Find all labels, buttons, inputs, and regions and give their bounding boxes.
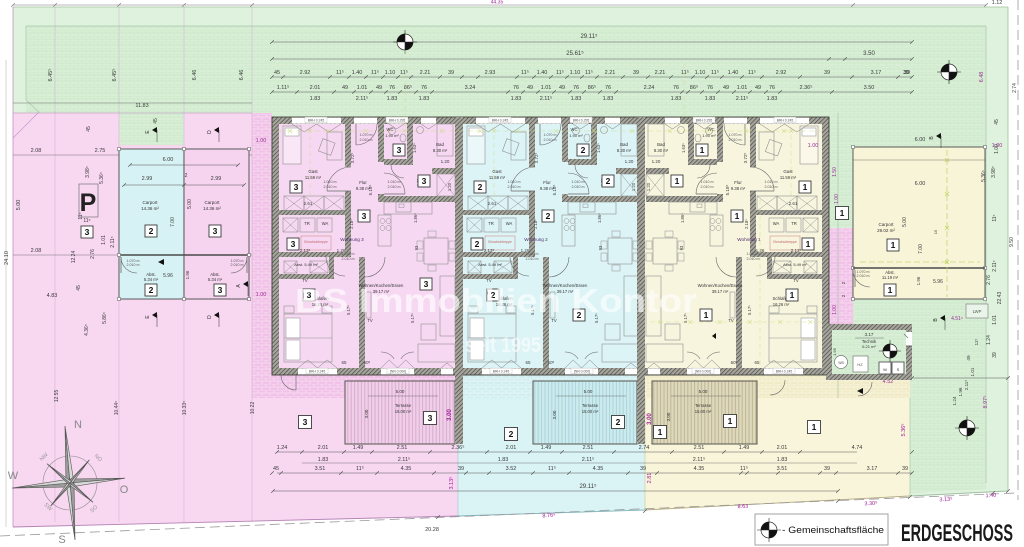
svg-text:3.30⁵: 3.30⁵ — [864, 500, 877, 508]
svg-text:3: 3 — [85, 227, 90, 237]
svg-text:3: 3 — [428, 413, 433, 423]
svg-text:2.11⁵: 2.11⁵ — [964, 380, 969, 391]
svg-text:1: 1 — [675, 176, 680, 186]
svg-text:Gast: Gast — [308, 169, 318, 174]
svg-text:1.83: 1.83 — [777, 457, 788, 463]
svg-text:11⁵: 11⁵ — [681, 69, 689, 76]
svg-text:1.96: 1.96 — [185, 270, 190, 279]
svg-text:11⁵: 11⁵ — [356, 465, 364, 472]
svg-text:29.02 m²: 29.02 m² — [877, 228, 895, 233]
svg-text:BRH 0.245: BRH 0.245 — [308, 119, 325, 123]
svg-text:3.00: 3.00 — [447, 409, 453, 421]
svg-text:8.76⁵: 8.76⁵ — [542, 512, 555, 520]
svg-text:5.34 m²: 5.34 m² — [208, 277, 223, 282]
svg-text:3.51: 3.51 — [777, 466, 788, 472]
svg-text:2.010 m: 2.010 m — [729, 138, 742, 142]
svg-text:11⁵: 11⁵ — [400, 69, 408, 76]
svg-text:5.36⁵: 5.36⁵ — [981, 170, 987, 182]
svg-text:WA: WA — [773, 221, 780, 226]
svg-text:11⁵: 11⁵ — [585, 69, 593, 76]
svg-text:S: S — [58, 534, 65, 546]
svg-text:6.00: 6.00 — [915, 181, 926, 187]
svg-text:2.81: 2.81 — [647, 473, 653, 484]
svg-text:1.010 m: 1.010 m — [765, 180, 778, 184]
svg-text:76: 76 — [513, 85, 519, 91]
svg-text:2.61: 2.61 — [488, 201, 497, 206]
svg-text:1.01: 1.01 — [101, 235, 107, 245]
svg-text:3.98⁵: 3.98⁵ — [991, 166, 997, 178]
svg-text:8.97⁵: 8.97⁵ — [982, 396, 989, 409]
svg-text:11⁵: 11⁵ — [83, 218, 90, 224]
svg-text:3.24: 3.24 — [465, 85, 476, 91]
svg-text:BRH 0.245: BRH 0.245 — [777, 119, 794, 123]
svg-text:45: 45 — [76, 285, 82, 291]
svg-text:39: 39 — [824, 70, 830, 76]
svg-text:Abst. 5.49 m²: Abst. 5.49 m² — [783, 262, 807, 267]
svg-text:11.83: 11.83 — [135, 103, 148, 109]
svg-text:1.40: 1.40 — [985, 493, 996, 500]
svg-text:Bad: Bad — [436, 142, 444, 147]
svg-text:5.00: 5.00 — [699, 389, 708, 394]
svg-text:2.13⁵: 2.13⁵ — [300, 248, 311, 253]
svg-text:1.49: 1.49 — [739, 445, 750, 451]
svg-text:2: 2 — [478, 182, 483, 192]
svg-text:2.61: 2.61 — [789, 201, 798, 206]
svg-text:Carport: Carport — [142, 200, 158, 205]
svg-text:1.40: 1.40 — [352, 70, 363, 76]
svg-text:76: 76 — [769, 85, 775, 91]
svg-text:3.72⁵: 3.72⁵ — [534, 153, 539, 164]
svg-text:12.24: 12.24 — [71, 251, 77, 264]
svg-text:7.00: 7.00 — [918, 244, 924, 254]
svg-text:15: 15 — [933, 229, 938, 234]
svg-text:1.12: 1.12 — [992, 0, 1003, 6]
svg-text:1.83: 1.83 — [310, 96, 321, 102]
svg-text:39: 39 — [992, 352, 998, 358]
svg-text:Einschubtreppe: Einschubtreppe — [488, 240, 512, 244]
svg-text:15.00 m²: 15.00 m² — [582, 409, 599, 414]
svg-text:Gast: Gast — [783, 169, 793, 174]
svg-text:Carport: Carport — [204, 200, 220, 205]
svg-text:W: W — [883, 367, 887, 372]
svg-text:1.83: 1.83 — [511, 96, 522, 102]
svg-text:4.35: 4.35 — [694, 466, 705, 472]
svg-text:1.010 m: 1.010 m — [572, 180, 585, 184]
svg-text:2.010 m: 2.010 m — [701, 185, 714, 189]
svg-text:3.00: 3.00 — [647, 413, 653, 425]
svg-text:45: 45 — [153, 118, 159, 124]
svg-text:3: 3 — [362, 211, 367, 221]
svg-text:3.50: 3.50 — [863, 51, 875, 57]
svg-text:2.92: 2.92 — [776, 70, 787, 76]
svg-text:P: P — [80, 189, 97, 217]
svg-text:2.010 m: 2.010 m — [324, 185, 337, 189]
svg-text:1.40: 1.40 — [728, 70, 739, 76]
svg-text:2.51: 2.51 — [694, 445, 705, 451]
svg-text:1.010 m: 1.010 m — [324, 180, 337, 184]
svg-text:[NN 0.000]: [NN 0.000] — [390, 370, 406, 374]
svg-text:2.11⁵: 2.11⁵ — [398, 456, 411, 463]
svg-text:3.00: 3.00 — [666, 412, 671, 421]
svg-text:1.20: 1.20 — [652, 159, 661, 164]
svg-text:1.40: 1.40 — [537, 70, 548, 76]
svg-text:3: 3 — [218, 285, 223, 295]
svg-text:2: 2 — [149, 285, 154, 295]
svg-text:3.00: 3.00 — [364, 409, 369, 418]
svg-text:2.01: 2.01 — [318, 445, 329, 451]
svg-text:3: 3 — [291, 239, 296, 249]
svg-text:2.010 m: 2.010 m — [526, 257, 539, 261]
svg-text:49: 49 — [755, 85, 761, 91]
svg-text:76: 76 — [421, 85, 427, 91]
svg-text:TR: TR — [488, 221, 494, 226]
svg-text:4.36⁵: 4.36⁵ — [84, 324, 90, 336]
svg-text:2: 2 — [581, 145, 586, 155]
svg-text:1: 1 — [735, 211, 740, 221]
svg-text:15.00 m²: 15.00 m² — [695, 409, 712, 414]
svg-text:6.46: 6.46 — [239, 70, 245, 81]
svg-text:3.13⁵: 3.13⁵ — [939, 496, 952, 504]
svg-text:8.63: 8.63 — [737, 504, 748, 511]
svg-text:6.00: 6.00 — [163, 157, 174, 163]
svg-text:7.00: 7.00 — [170, 217, 176, 227]
svg-text:TV: TV — [793, 278, 799, 283]
svg-text:3.17: 3.17 — [865, 332, 874, 337]
svg-text:TR: TR — [304, 221, 310, 226]
svg-text:65: 65 — [342, 360, 347, 365]
svg-text:2.010 m: 2.010 m — [544, 138, 557, 142]
svg-text:60⁵: 60⁵ — [731, 360, 738, 365]
svg-text:1.83: 1.83 — [571, 96, 582, 102]
svg-text:3: 3 — [397, 145, 402, 155]
svg-text:Terrasse: Terrasse — [582, 403, 599, 408]
svg-text:Flur: Flur — [734, 180, 742, 185]
svg-text:1.00: 1.00 — [994, 144, 1000, 154]
svg-text:5.18⁵: 5.18⁵ — [368, 185, 373, 196]
svg-text:93: 93 — [414, 245, 419, 250]
svg-text:1.00: 1.00 — [832, 305, 838, 315]
svg-text:Carport: Carport — [878, 222, 894, 227]
svg-text:Wohnen/Kochen/Essen: Wohnen/Kochen/Essen — [698, 283, 743, 288]
svg-text:WA: WA — [322, 221, 329, 226]
svg-text:1.24: 1.24 — [277, 445, 288, 451]
svg-text:39: 39 — [448, 70, 454, 76]
svg-text:5.00: 5.00 — [187, 199, 193, 209]
svg-text:Abst. 5.49 m²: Abst. 5.49 m² — [294, 262, 318, 267]
svg-text:1.20: 1.20 — [646, 182, 651, 191]
svg-text:11⁵: 11⁵ — [336, 69, 344, 76]
svg-text:Bad: Bad — [620, 142, 628, 147]
svg-text:1.63⁵: 1.63⁵ — [681, 143, 686, 153]
svg-text:2.61: 2.61 — [304, 201, 313, 206]
svg-text:5.96: 5.96 — [933, 279, 943, 285]
svg-text:76: 76 — [389, 85, 395, 91]
svg-text:5.00: 5.00 — [902, 217, 908, 227]
svg-text:2.18⁵: 2.18⁵ — [349, 219, 354, 229]
svg-text:2: 2 — [475, 239, 480, 249]
svg-text:1.96: 1.96 — [916, 276, 921, 285]
svg-text:3.51: 3.51 — [315, 466, 326, 472]
svg-text:5.86⁵: 5.86⁵ — [102, 312, 108, 324]
svg-text:1.01: 1.01 — [541, 85, 552, 91]
svg-text:1.86⁵: 1.86⁵ — [680, 213, 685, 223]
svg-text:16.26 m²: 16.26 m² — [773, 302, 790, 307]
svg-text:86⁵: 86⁵ — [588, 84, 596, 91]
svg-text:49: 49 — [376, 85, 382, 91]
svg-text:2: 2 — [149, 226, 154, 236]
svg-text:45: 45 — [86, 126, 92, 132]
svg-text:11⁵: 11⁵ — [548, 465, 556, 472]
svg-text:3: 3 — [294, 182, 299, 192]
svg-text:39: 39 — [824, 466, 830, 472]
svg-text:Terrasse: Terrasse — [395, 403, 412, 408]
svg-text:2.11⁵: 2.11⁵ — [582, 456, 595, 463]
svg-text:5.18⁵: 5.18⁵ — [552, 185, 557, 196]
svg-text:1: 1 — [891, 240, 896, 250]
svg-text:Wohnung 1: Wohnung 1 — [737, 237, 761, 242]
svg-text:2.76: 2.76 — [986, 275, 992, 285]
svg-text:- Gemeinschaftsfläche: - Gemeinschaftsfläche — [782, 525, 884, 535]
svg-text:39: 39 — [903, 70, 909, 76]
svg-text:1.10: 1.10 — [570, 70, 581, 76]
svg-text:1.96: 1.96 — [832, 347, 837, 356]
svg-text:12.55: 12.55 — [54, 390, 60, 403]
svg-text:2: 2 — [509, 429, 514, 439]
svg-text:2.010 m: 2.010 m — [765, 185, 778, 189]
svg-text:Einschubtreppe: Einschubtreppe — [304, 240, 328, 244]
svg-text:6.21 m²: 6.21 m² — [862, 344, 876, 349]
svg-text:2.13⁵: 2.13⁵ — [791, 248, 802, 253]
svg-text:Gast: Gast — [492, 169, 502, 174]
svg-text:1.01: 1.01 — [970, 367, 975, 376]
svg-text:60⁵: 60⁵ — [364, 360, 371, 365]
svg-text:Bad: Bad — [657, 142, 665, 147]
svg-text:10.33⁵: 10.33⁵ — [182, 401, 188, 416]
svg-text:1: 1 — [700, 145, 705, 155]
svg-text:2.11⁵: 2.11⁵ — [540, 95, 553, 102]
svg-text:1.86⁵: 1.86⁵ — [597, 213, 602, 223]
svg-text:10.44⁵: 10.44⁵ — [114, 401, 120, 416]
svg-text:BS Immobilien Kontor: BS Immobilien Kontor — [295, 282, 697, 319]
svg-text:14.36 m²: 14.36 m² — [203, 206, 221, 211]
svg-text:2.010 m: 2.010 m — [857, 274, 870, 278]
svg-text:5.00: 5.00 — [396, 389, 405, 394]
svg-text:11⁵: 11⁵ — [992, 214, 998, 221]
svg-text:10.22: 10.22 — [250, 402, 256, 415]
svg-text:5.36⁵: 5.36⁵ — [900, 424, 907, 437]
svg-text:3: 3 — [303, 417, 308, 427]
svg-text:3: 3 — [422, 176, 427, 186]
svg-text:4.35: 4.35 — [593, 466, 604, 472]
svg-text:BRH 0.245: BRH 0.245 — [492, 119, 509, 123]
svg-text:60⁵: 60⁵ — [548, 360, 555, 365]
svg-text:6.00: 6.00 — [915, 137, 926, 143]
svg-text:29.11⁵: 29.11⁵ — [579, 483, 597, 490]
svg-text:1.90 m²: 1.90 m² — [385, 133, 399, 138]
svg-text:6.48: 6.48 — [979, 72, 985, 83]
svg-text:5.36⁵: 5.36⁵ — [99, 172, 105, 184]
svg-text:2.99: 2.99 — [142, 176, 153, 182]
svg-text:6.45⁵: 6.45⁵ — [47, 69, 54, 82]
svg-text:2: 2 — [546, 211, 551, 221]
svg-text:1.070 m: 1.070 m — [360, 133, 373, 137]
svg-text:1.11⁵: 1.11⁵ — [277, 84, 290, 91]
svg-text:1.83: 1.83 — [419, 96, 430, 102]
svg-text:11.59 m²: 11.59 m² — [780, 175, 797, 180]
svg-text:39: 39 — [640, 466, 646, 472]
svg-text:2.010 m: 2.010 m — [342, 257, 355, 261]
svg-text:2.010 m: 2.010 m — [388, 185, 401, 189]
svg-text:22.43: 22.43 — [997, 292, 1003, 305]
svg-text:4.83: 4.83 — [47, 293, 58, 299]
svg-text:2.010 m: 2.010 m — [231, 263, 244, 267]
svg-text:S: S — [897, 367, 900, 372]
svg-text:1.49: 1.49 — [541, 445, 552, 451]
svg-text:8.30 m²: 8.30 m² — [617, 148, 632, 153]
svg-text:5.18⁵: 5.18⁵ — [725, 185, 730, 196]
svg-text:9.50: 9.50 — [1009, 237, 1015, 247]
svg-text:2.010 m: 2.010 m — [127, 263, 140, 267]
svg-text:1: 1 — [888, 285, 893, 295]
svg-text:Flur: Flur — [359, 180, 367, 185]
svg-text:2.24: 2.24 — [644, 85, 655, 91]
svg-text:11⁵: 11⁵ — [371, 69, 379, 76]
svg-text:2.01: 2.01 — [777, 445, 788, 451]
svg-text:2.13⁵: 2.13⁵ — [484, 248, 495, 253]
svg-text:2.21: 2.21 — [655, 70, 666, 76]
svg-text:1: 1 — [728, 416, 733, 426]
svg-text:45: 45 — [274, 70, 280, 76]
svg-text:WA: WA — [506, 221, 513, 226]
svg-text:WB: WB — [838, 361, 844, 365]
svg-text:BRH 0.245: BRH 0.245 — [776, 370, 793, 374]
svg-text:4.74: 4.74 — [852, 445, 863, 451]
svg-text:76: 76 — [707, 85, 713, 91]
svg-text:1.24: 1.24 — [952, 396, 957, 405]
svg-text:1: 1 — [806, 239, 811, 249]
svg-text:11⁵: 11⁵ — [556, 69, 564, 76]
svg-text:3: 3 — [213, 226, 218, 236]
svg-text:1.010 m: 1.010 m — [701, 180, 714, 184]
svg-text:49: 49 — [966, 355, 971, 361]
svg-text:3.52: 3.52 — [506, 466, 517, 472]
svg-text:5.17⁵: 5.17⁵ — [747, 305, 752, 315]
svg-text:45: 45 — [994, 119, 1000, 125]
svg-text:2.75: 2.75 — [95, 148, 106, 154]
svg-text:1.01: 1.01 — [357, 85, 368, 91]
svg-text:45: 45 — [273, 466, 279, 472]
svg-text:1.20: 1.20 — [631, 182, 636, 191]
svg-text:Terrasse: Terrasse — [695, 403, 712, 408]
svg-text:3.50: 3.50 — [864, 85, 875, 91]
svg-text:2.92: 2.92 — [300, 70, 311, 76]
svg-text:5.00: 5.00 — [16, 200, 22, 211]
svg-text:11.19 m²: 11.19 m² — [882, 275, 899, 280]
svg-text:1.070 m: 1.070 m — [729, 133, 742, 137]
svg-text:2.21: 2.21 — [420, 70, 431, 76]
svg-text:2: 2 — [185, 173, 188, 179]
svg-text:1.90 m²: 1.90 m² — [702, 133, 716, 138]
svg-text:1.10: 1.10 — [695, 70, 706, 76]
svg-text:24.10: 24.10 — [4, 251, 10, 265]
svg-text:2.08: 2.08 — [31, 248, 42, 254]
svg-text:1.83: 1.83 — [705, 96, 716, 102]
svg-text:2.18⁵: 2.18⁵ — [744, 219, 749, 229]
svg-text:BRH 0.245: BRH 0.245 — [309, 370, 326, 374]
svg-text:2.76: 2.76 — [90, 249, 96, 259]
svg-text:39: 39 — [458, 466, 464, 472]
svg-text:1.20: 1.20 — [447, 182, 452, 191]
svg-text:76: 76 — [673, 85, 679, 91]
svg-text:D: D — [207, 315, 213, 319]
svg-text:5.96: 5.96 — [163, 273, 173, 279]
svg-text:2.21: 2.21 — [605, 70, 616, 76]
svg-text:2.010 m: 2.010 m — [508, 185, 521, 189]
svg-text:2.99: 2.99 — [211, 176, 222, 182]
svg-text:1.63⁵: 1.63⁵ — [596, 143, 601, 153]
svg-text:2.010 m: 2.010 m — [747, 257, 760, 261]
svg-text:D: D — [207, 130, 213, 134]
svg-text:1: 1 — [658, 427, 663, 437]
svg-text:1: 1 — [704, 310, 709, 320]
svg-text:BRH 0.295: BRH 0.295 — [696, 119, 713, 123]
svg-text:9.38 m²: 9.38 m² — [731, 186, 746, 191]
svg-text:1.26: 1.26 — [521, 248, 530, 253]
svg-text:1.90 m²: 1.90 m² — [569, 133, 583, 138]
svg-text:8.30 m²: 8.30 m² — [654, 148, 669, 153]
svg-text:15.00 m²: 15.00 m² — [395, 409, 412, 414]
svg-text:5.00: 5.00 — [584, 389, 593, 394]
svg-text:O: O — [120, 484, 129, 496]
svg-text:39: 39 — [633, 70, 639, 76]
svg-text:11⁵: 11⁵ — [974, 339, 979, 346]
svg-text:ERDGESCHOSS: ERDGESCHOSS — [901, 520, 1013, 547]
svg-text:1.20: 1.20 — [441, 159, 450, 164]
svg-text:3.72⁵: 3.72⁵ — [350, 153, 355, 164]
svg-text:6.46: 6.46 — [192, 70, 198, 81]
svg-text:W: W — [8, 470, 19, 482]
svg-text:44.35: 44.35 — [491, 0, 504, 6]
svg-text:3.72⁵: 3.72⁵ — [743, 153, 748, 164]
svg-text:4.35: 4.35 — [401, 466, 412, 472]
svg-text:Einschubtreppe: Einschubtreppe — [773, 240, 797, 244]
svg-text:3.17: 3.17 — [867, 466, 878, 472]
svg-text:1.96: 1.96 — [958, 387, 963, 396]
svg-text:1.50: 1.50 — [832, 167, 838, 177]
svg-text:1.83: 1.83 — [498, 457, 509, 463]
svg-text:49: 49 — [527, 85, 533, 91]
svg-text:1.010 m: 1.010 m — [508, 180, 521, 184]
svg-text:1.00: 1.00 — [834, 194, 840, 204]
svg-text:1.83: 1.83 — [387, 96, 398, 102]
svg-text:1.01: 1.01 — [992, 315, 998, 325]
svg-text:2: 2 — [606, 176, 611, 186]
svg-text:3.98⁵: 3.98⁵ — [85, 166, 91, 178]
svg-text:76: 76 — [573, 85, 579, 91]
svg-text:Abst. 5.49 m²: Abst. 5.49 m² — [478, 262, 502, 267]
svg-text:14.36 m²: 14.36 m² — [141, 206, 159, 211]
svg-text:2.11⁵: 2.11⁵ — [110, 236, 116, 247]
svg-text:LWP: LWP — [973, 309, 982, 314]
svg-text:49: 49 — [342, 85, 348, 91]
svg-text:1.83: 1.83 — [671, 96, 682, 102]
svg-text:1.00: 1.00 — [808, 143, 819, 149]
svg-text:HZ: HZ — [857, 362, 863, 367]
svg-text:65: 65 — [526, 360, 531, 365]
svg-text:11⁵: 11⁵ — [711, 69, 719, 76]
svg-text:Wohnung 2: Wohnung 2 — [524, 237, 548, 242]
svg-text:86⁵: 86⁵ — [690, 84, 698, 91]
